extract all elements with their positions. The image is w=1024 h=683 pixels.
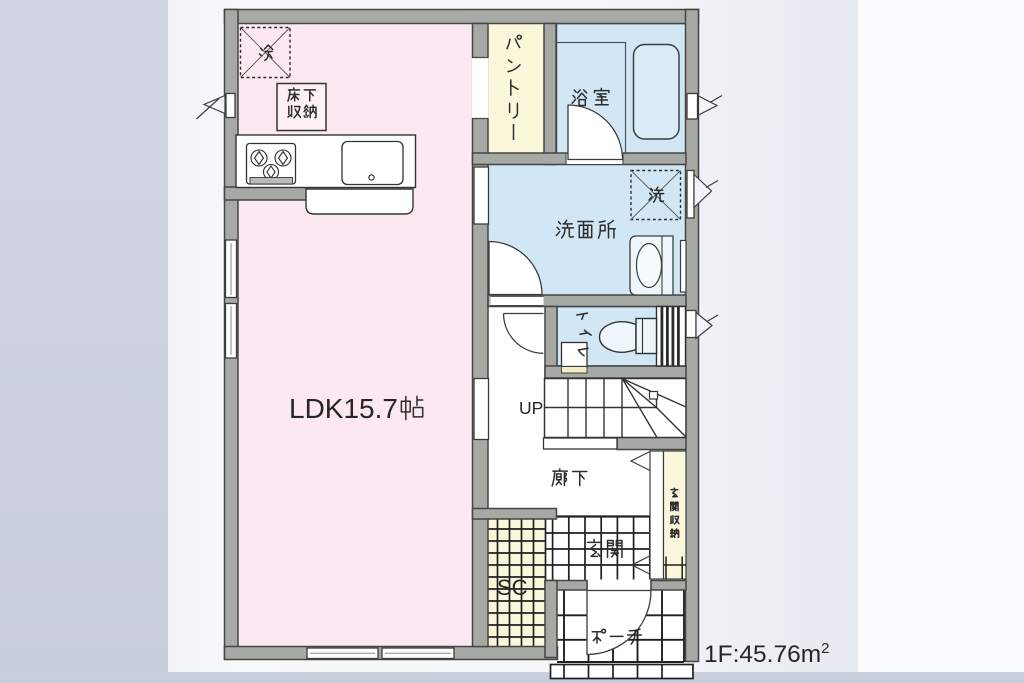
svg-text:1F:45.76m2: 1F:45.76m2: [704, 640, 829, 668]
svg-text:SC: SC: [497, 575, 528, 600]
svg-text:UP: UP: [519, 398, 543, 418]
svg-text:LDK15.7: LDK15.7: [289, 393, 398, 424]
